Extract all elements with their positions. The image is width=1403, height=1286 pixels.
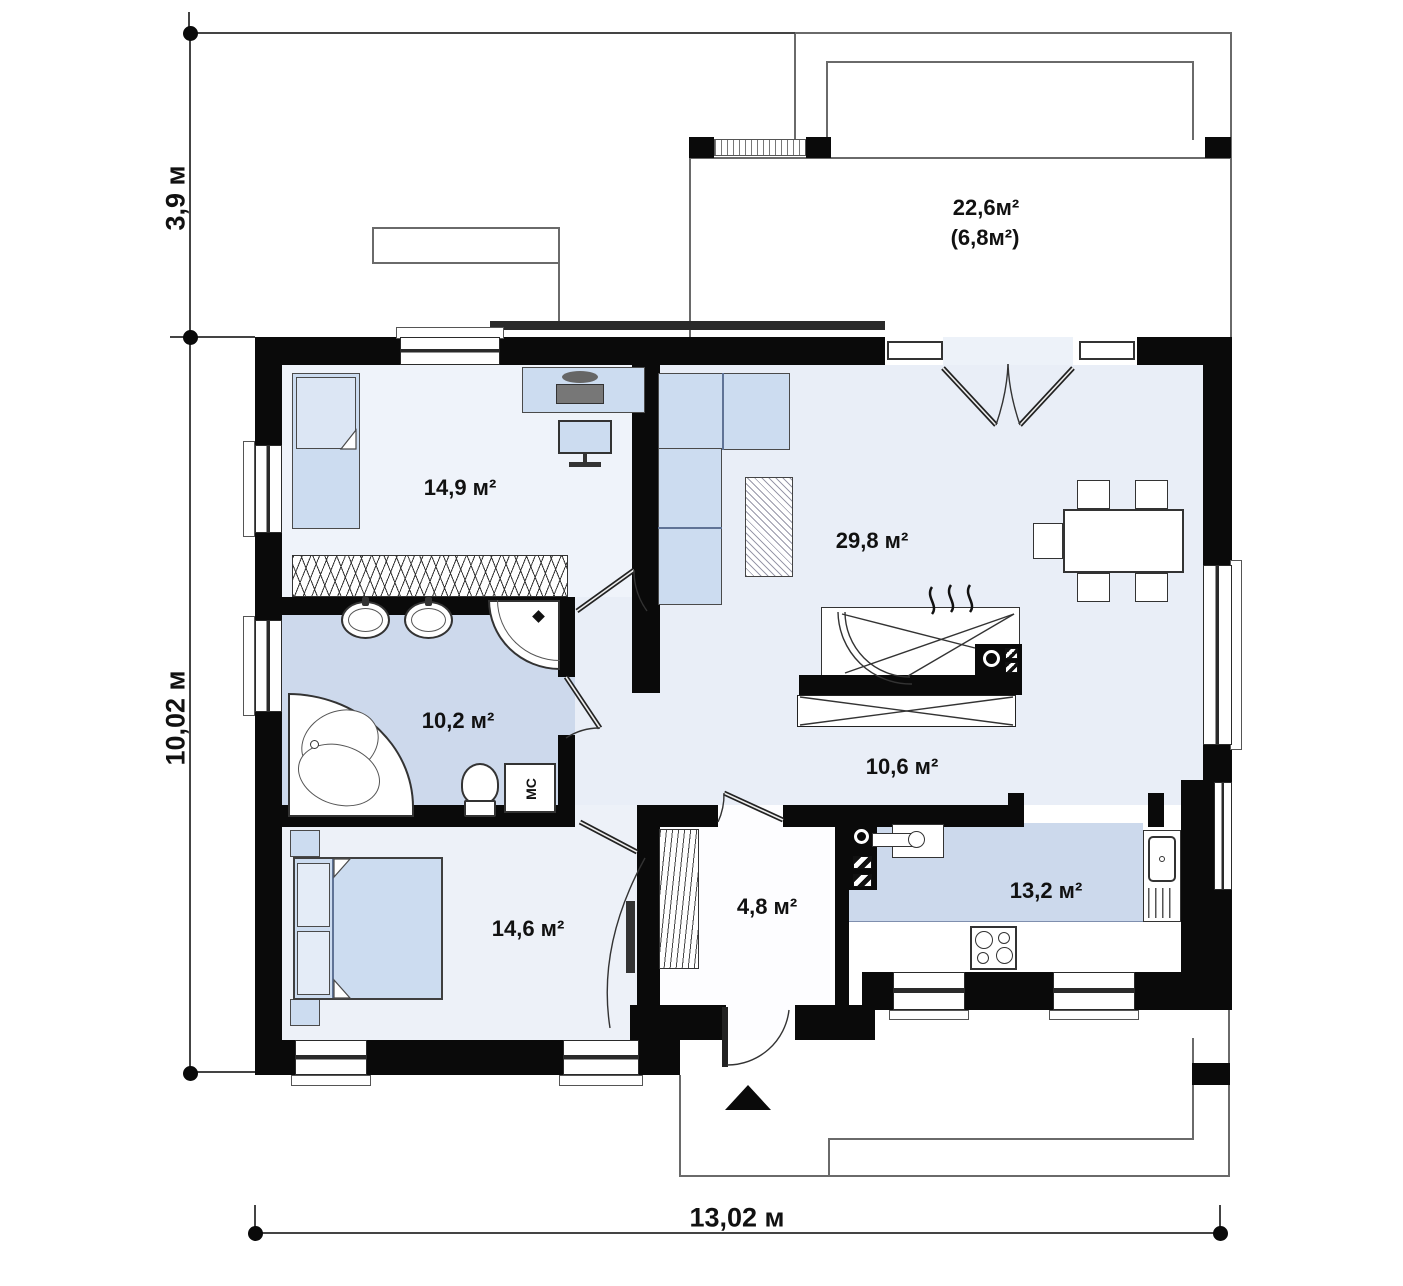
door-leaf-inner: [577, 570, 634, 611]
door-leaf-inner: [724, 793, 783, 820]
door-arc: [566, 728, 600, 738]
fireplace-line: [842, 614, 975, 648]
door-leaf-inner: [566, 677, 600, 728]
french-door-arc: [1008, 364, 1020, 425]
room-label-bedroom2: 14,6 м²: [492, 916, 565, 942]
room-label-terrace: 22,6м²: [953, 195, 1019, 221]
door-arc: [718, 793, 724, 822]
room-label-kitchen: 13,2 м²: [1010, 878, 1083, 904]
blanket-fold: [334, 980, 350, 998]
door-arc: [727, 1010, 789, 1065]
flame-icon: [930, 587, 934, 614]
room-label-hall: 10,6 м²: [866, 754, 939, 780]
flame-icon: [949, 585, 953, 612]
room-label-bedroom1: 14,9 м²: [424, 475, 497, 501]
fireplace-arc: [845, 612, 910, 677]
door-swings-layer: [0, 0, 1403, 1286]
door-arc: [634, 570, 647, 611]
french-door-arc: [996, 364, 1008, 425]
room-label-living: 29,8 м²: [836, 528, 909, 554]
floor-plan: 3,9 м 10,02 м 13,02 м: [0, 0, 1403, 1286]
room-label-hallway: 4,8 м²: [737, 894, 797, 920]
blanket-fold: [334, 859, 350, 877]
french-door-leaf-inner: [1020, 368, 1073, 425]
room-label-terrace-secondary: (6,8м²): [951, 225, 1020, 251]
flame-icon: [968, 585, 972, 612]
french-door-leaf-inner: [943, 368, 996, 425]
room-label-bathroom: 10,2 м²: [422, 708, 495, 734]
door-leaf-inner: [580, 822, 637, 852]
door-arc: [607, 858, 645, 1028]
pillow-fold: [341, 430, 356, 449]
